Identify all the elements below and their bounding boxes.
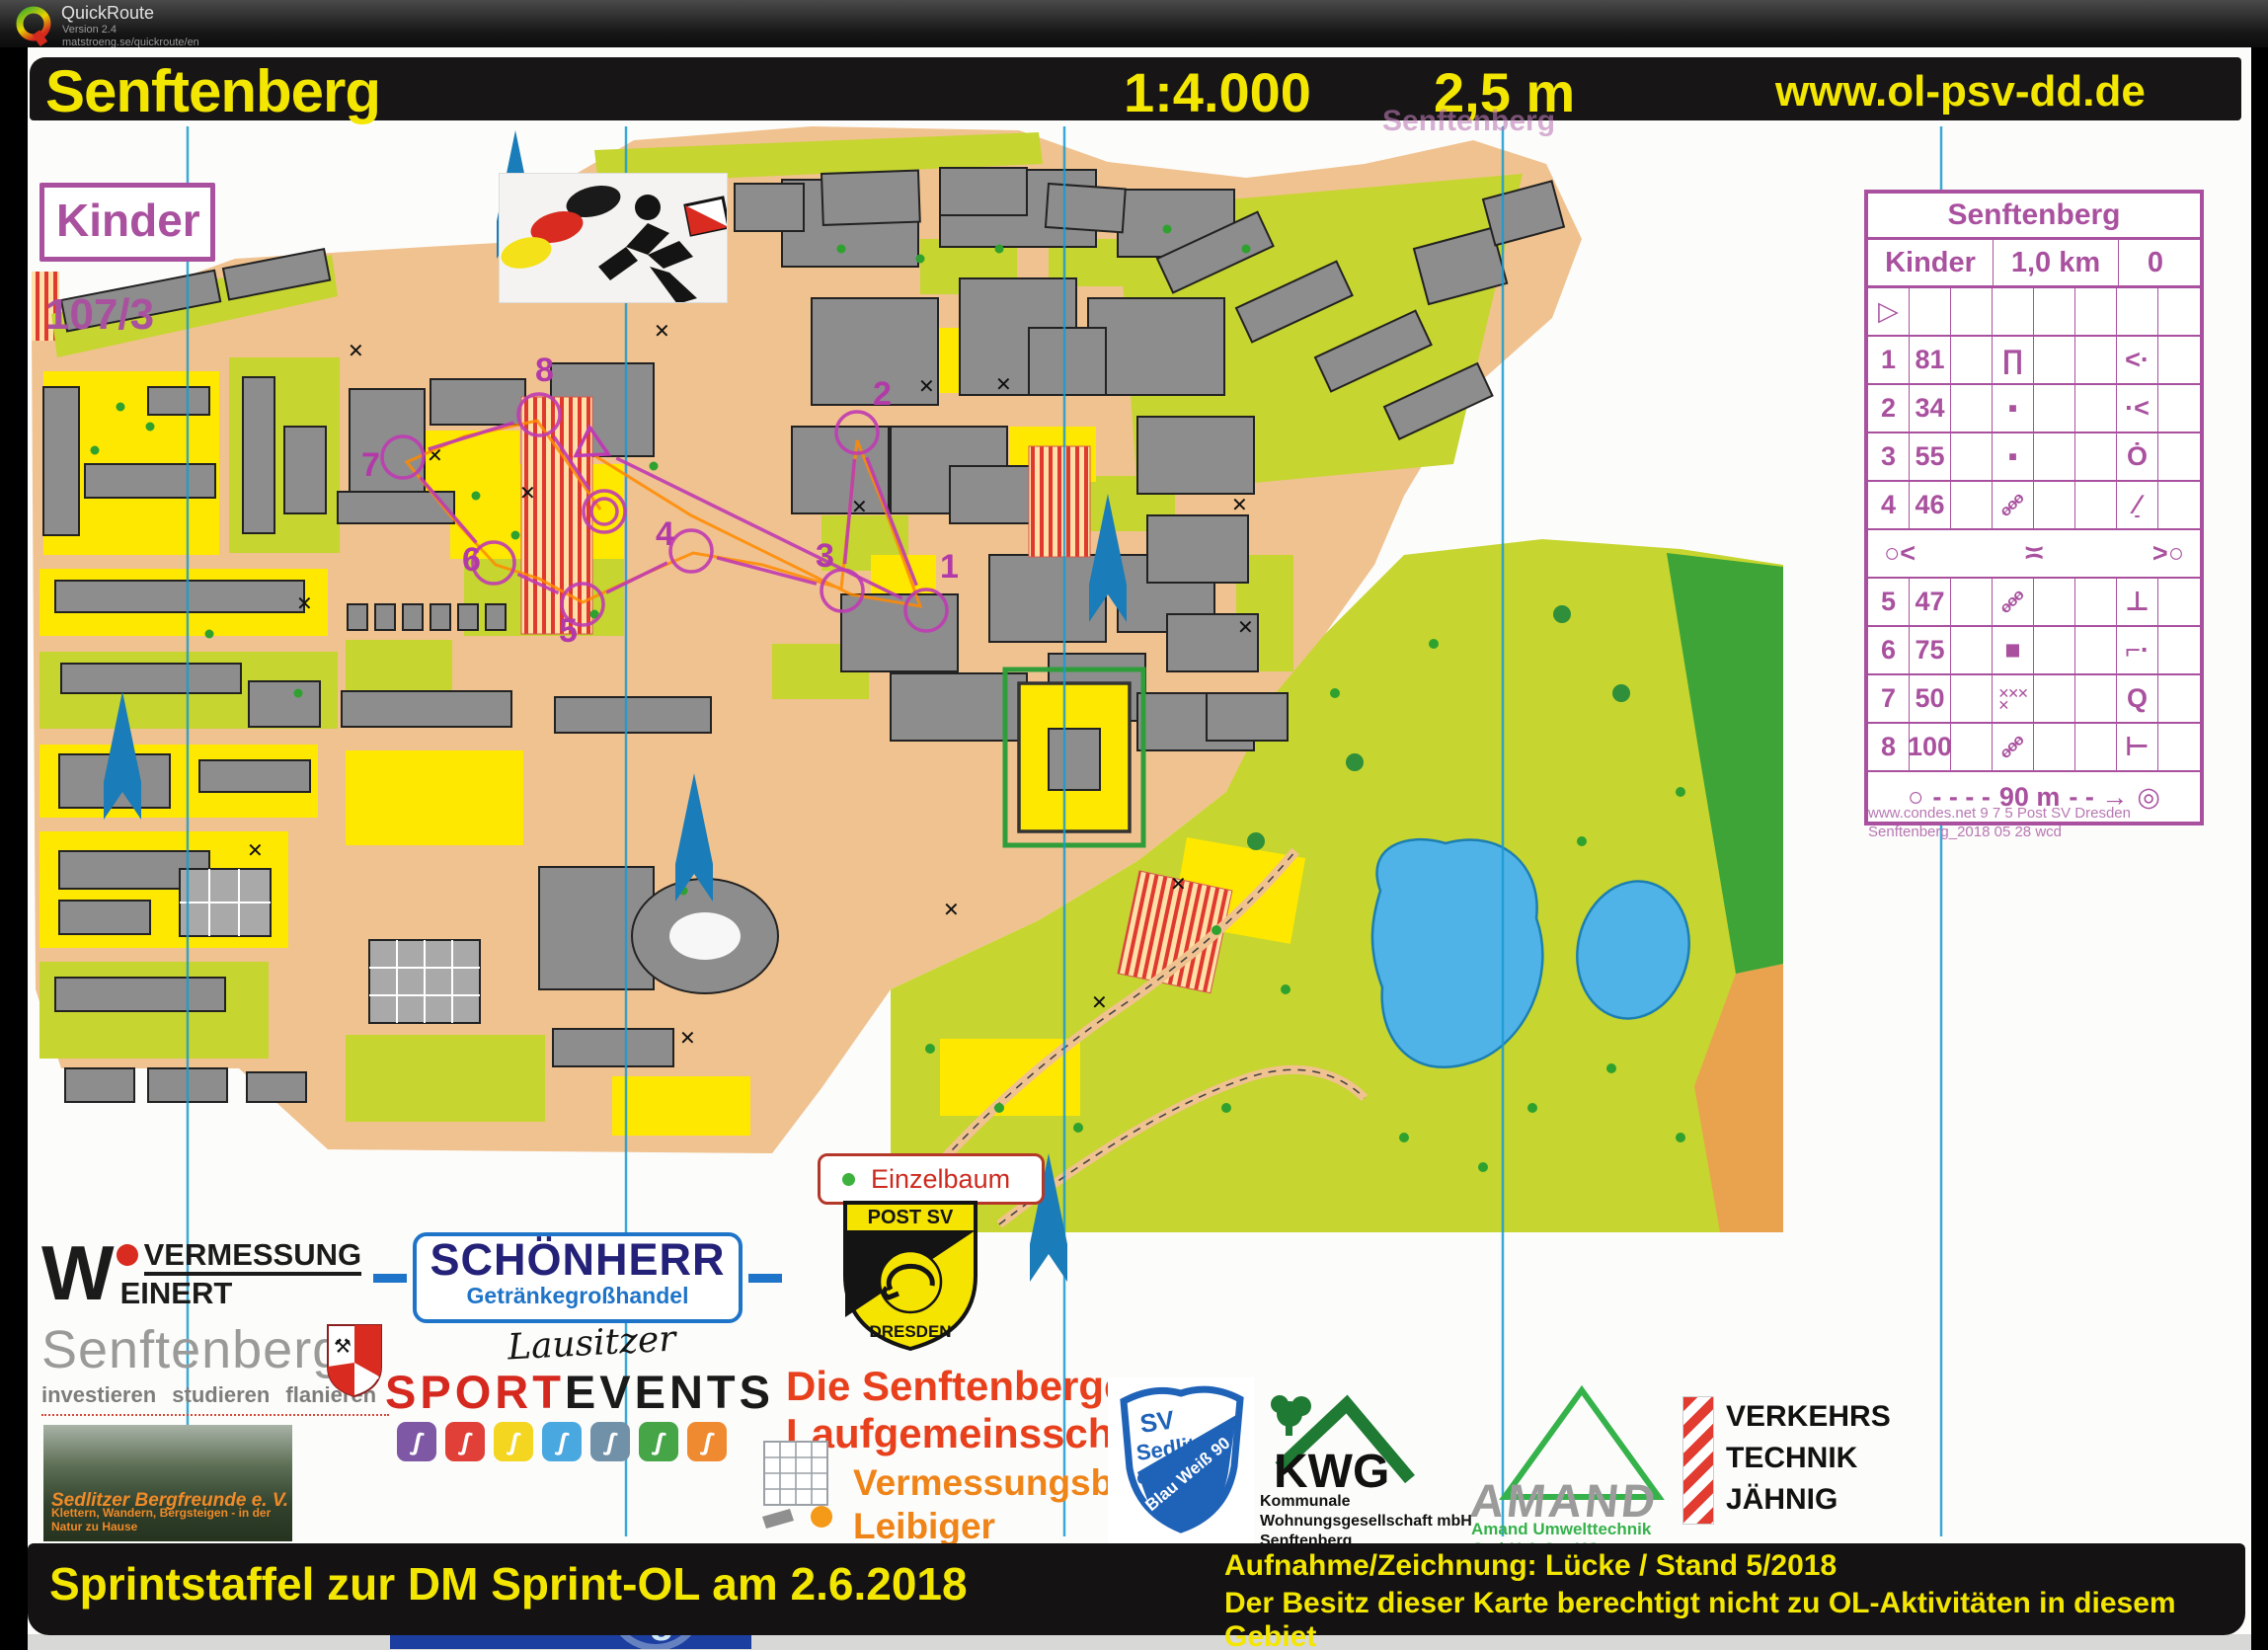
svg-text:✕: ✕ (348, 339, 364, 362)
control-number: 4 (656, 515, 674, 553)
quickroute-window: QuickRoute Version 2.4 matstroeng.se/qui… (0, 0, 2268, 1650)
sheet-cell: 5 (1868, 579, 1910, 625)
condes-credit: www.condes.net 9 7 5 Post SV Dresden (1868, 804, 2131, 823)
control-description-sheet: Senftenberg Kinder 1,0 km 0 ▷181∏<·234▪·… (1864, 190, 2204, 825)
sheet-cell: ⌐· (2117, 627, 2158, 673)
sponsor-sportevents: SPORTEVENTS (385, 1365, 774, 1419)
svg-text:✕: ✕ (1237, 615, 1254, 639)
map-credit: Aufnahme/Zeichnung: Lücke / Stand 5/2018 (1224, 1549, 1837, 1583)
sport-pictogram-icon: ʃ (494, 1422, 533, 1461)
sheet-cell: ooo (1993, 482, 2034, 528)
control-number: 6 (462, 541, 481, 579)
sheet-cell (2034, 482, 2075, 528)
sheet-cell: ■ (1993, 627, 2034, 673)
sportevents-red: SPORT (385, 1366, 565, 1418)
svg-text:✕: ✕ (918, 374, 935, 398)
sheet-cell (2034, 579, 2075, 625)
sheet-cell (1951, 385, 1993, 432)
sheet-control-row: 446ooo∕ (1868, 482, 2200, 530)
control-number: 5 (559, 612, 578, 650)
sheet-cell: 1 (1868, 337, 1910, 383)
sheet-course-info: Kinder 1,0 km 0 (1868, 240, 2200, 288)
ghost-print-title: Senftenberg (1382, 105, 1555, 138)
sheet-cell: 34 (1910, 385, 1951, 432)
sheet-cell: ooo (1993, 579, 2034, 625)
sheet-cell (2075, 433, 2117, 480)
kwg-roof-tree-icon: KWG (1260, 1388, 1428, 1491)
svg-text:✕: ✕ (1231, 493, 1248, 516)
sheet-cell (2158, 433, 2200, 480)
kwg-line2: Wohnungsgesellschaft mbH (1260, 1512, 1472, 1532)
file-credit: Senftenberg_2018 05 28 wcd (1868, 823, 2131, 841)
svg-text:✕: ✕ (851, 495, 868, 518)
sheet-cell: 7 (1868, 675, 1910, 722)
sheet-cell: 2 (1868, 385, 1910, 432)
svg-text:✕: ✕ (1091, 990, 1108, 1014)
city-crest-icon: ⚒ (326, 1323, 383, 1398)
svg-text:✕: ✕ (296, 591, 313, 615)
map-title: Senftenberg (45, 57, 380, 125)
app-title-bar: QuickRoute Version 2.4 matstroeng.se/qui… (0, 0, 2268, 47)
map-scale: 1:4.000 (1124, 60, 1311, 124)
sheet-control-row: 675■⌐· (1868, 627, 2200, 675)
control-number: 1 (940, 548, 959, 586)
relay-leg-number: 107/3 (45, 290, 154, 340)
sheet-cell (2075, 579, 2117, 625)
sheet-cell (2075, 627, 2117, 673)
sheet-cell: 100 (1910, 724, 1951, 770)
sheet-length: 1,0 km (1994, 240, 2119, 285)
map-page: ✕✕✕ ✕✕✕ ✕✕✕ ✕✕✕ ✕✕✕ (28, 47, 2251, 1639)
sheet-cell: ▷ (1868, 288, 1910, 335)
svg-text:✕: ✕ (943, 898, 960, 921)
sheet-cell (1910, 288, 1951, 335)
control-number: 7 (361, 446, 380, 484)
sheet-cell: 55 (1910, 433, 1951, 480)
sheet-climb: 0 (2119, 240, 2192, 285)
green-tree-dot-icon (842, 1173, 855, 1186)
schoenherr-name: SCHÖNHERR (417, 1236, 739, 1284)
red-dot-icon (117, 1244, 138, 1266)
sponsor-bergfreunde-photo: Sedlitzer Bergfreunde e. V. Klettern, Wa… (43, 1425, 292, 1541)
sheet-cell: ·< (2117, 385, 2158, 432)
quickroute-logo-icon (14, 4, 53, 47)
sheet-cell (2158, 288, 2200, 335)
sheet-cell: 46 (1910, 482, 1951, 528)
sheet-cell (1951, 724, 1993, 770)
blue-dash-icon (748, 1274, 782, 1283)
weinert-initial: W (41, 1238, 115, 1311)
svg-text:✕: ✕ (1170, 872, 1187, 896)
sport-icon-row: ʃʃʃʃʃʃʃ (397, 1422, 727, 1461)
sport-pictogram-icon: ʃ (542, 1422, 582, 1461)
sheet-cell (2034, 288, 2075, 335)
sheet-control-row: 181∏<· (1868, 337, 2200, 385)
sheet-cell: 6 (1868, 627, 1910, 673)
sheet-cell (1951, 627, 1993, 673)
jaehnig-line1: VERKEHRS (1726, 1396, 1891, 1438)
sheet-cell: 4 (1868, 482, 1910, 528)
sheet-cell (1951, 482, 1993, 528)
finish-double-circle-icon: ◎ (2137, 782, 2160, 813)
svg-text:✕: ✕ (995, 372, 1012, 396)
postsv-top: POST SV (868, 1207, 954, 1228)
kwg-name: KWG (1274, 1446, 1389, 1491)
runner-logo-icon (500, 174, 727, 302)
sheet-cell: 8 (1868, 724, 1910, 770)
sheet-cell (2075, 724, 2117, 770)
sheet-cell: Q (2117, 675, 2158, 722)
sport-pictogram-icon: ʃ (397, 1422, 436, 1461)
sheet-cell (1951, 288, 1993, 335)
sheet-cell: 75 (1910, 627, 1951, 673)
sheet-cell (2158, 579, 2200, 625)
sponsor-kwg: KWG Kommunale Wohnungsgesellschaft mbH S… (1260, 1388, 1472, 1551)
sheet-cell (1951, 579, 1993, 625)
sheet-start-row: ▷ (1868, 288, 2200, 337)
divider-dotted (41, 1414, 389, 1416)
jaehnig-line3: JÄHNIG (1726, 1479, 1891, 1521)
sheet-cell (2034, 385, 2075, 432)
sponsor-schoenherr: SCHÖNHERR Getränkegroßhandel (413, 1232, 743, 1323)
sheet-cell (2158, 675, 2200, 722)
sheet-cell (2158, 627, 2200, 673)
svg-text:✕: ✕ (679, 1026, 696, 1050)
svg-text:✕: ✕ (654, 319, 670, 343)
sheet-spectator-row: ○<≍>○ (1868, 530, 2200, 579)
sheet-cell: ▪ (1993, 385, 2034, 432)
footer-band: Sprintstaffel zur DM Sprint-OL am 2.6.20… (28, 1543, 2245, 1635)
bergfreunde-slogan: Klettern, Wandern, Bergsteigen - in der … (51, 1506, 292, 1533)
sheet-control-row: 750✕✕✕✕Q (1868, 675, 2200, 724)
app-name: QuickRoute (61, 3, 154, 24)
sheet-event-title: Senftenberg (1868, 194, 2200, 240)
sedlitz-sv: SV (1138, 1404, 1177, 1439)
single-tree-label: Einzelbaum (871, 1164, 1010, 1195)
sheet-cell (2158, 385, 2200, 432)
sheet-control-row: 355▪Ȯ (1868, 433, 2200, 482)
svg-text:✕: ✕ (519, 481, 536, 505)
sheet-cell (2075, 675, 2117, 722)
sponsor-weinert: W VERMESSUNG EINERT (41, 1238, 361, 1311)
blue-dash-icon (373, 1274, 407, 1283)
sheet-cell (2075, 482, 2117, 528)
usage-notice: Der Besitz dieser Karte berechtigt nicht… (1224, 1587, 2245, 1650)
hazard-stripe-icon (1682, 1396, 1714, 1525)
svg-text:⚒: ⚒ (334, 1336, 352, 1358)
jaehnig-line2: TECHNIK (1726, 1438, 1891, 1479)
sheet-cell (1951, 675, 1993, 722)
sheet-cell (1951, 337, 1993, 383)
leibiger-grid-icon (760, 1438, 839, 1529)
sheet-cell (2158, 337, 2200, 383)
event-title: Sprintstaffel zur DM Sprint-OL am 2.6.20… (49, 1557, 968, 1611)
sheet-cell (2034, 724, 2075, 770)
sheet-cell: 3 (1868, 433, 1910, 480)
sheet-cell (1993, 288, 2034, 335)
sheet-cell: 81 (1910, 337, 1951, 383)
sheet-cell: ∕ (2117, 482, 2158, 528)
schoenherr-sub: Getränkegroßhandel (417, 1284, 739, 1307)
sheet-cell (2158, 724, 2200, 770)
map-title-band: Senftenberg 1:4.000 2,5 m www.ol-psv-dd.… (30, 57, 2241, 120)
sheet-cell: ooo (1993, 724, 2034, 770)
sheet-cell: ⊥ (2117, 579, 2158, 625)
sheet-cell (2075, 337, 2117, 383)
sheet-cell: 50 (1910, 675, 1951, 722)
sheet-cell: Ȯ (2117, 433, 2158, 480)
course-class-box: Kinder (39, 183, 215, 262)
sheet-cell: ⊢ (2117, 724, 2158, 770)
sheet-credits: www.condes.net 9 7 5 Post SV Dresden Sen… (1868, 804, 2131, 841)
sheet-cell (2075, 288, 2117, 335)
sheet-cell (2075, 385, 2117, 432)
sheet-cell: 47 (1910, 579, 1951, 625)
kwg-line1: Kommunale (1260, 1492, 1472, 1512)
postsv-bottom: DRESDEN (869, 1322, 951, 1341)
control-number: 3 (816, 537, 834, 575)
sheet-cell (1951, 433, 1993, 480)
sheet-cell: <· (2117, 337, 2158, 383)
control-number: 8 (535, 352, 554, 389)
sport-pictogram-icon: ʃ (687, 1422, 727, 1461)
sport-pictogram-icon: ʃ (590, 1422, 630, 1461)
sheet-rows: ▷181∏<·234▪·<355▪Ȯ446ooo∕○<≍>○547ooo⊥675… (1868, 288, 2200, 772)
sheet-cell: ∏ (1993, 337, 2034, 383)
sportevents-black: EVENTS (565, 1366, 774, 1418)
sheet-cell (2117, 288, 2158, 335)
orienteering-runner-logo (500, 174, 727, 302)
sheet-cell (2034, 675, 2075, 722)
amand-name: AMAND (1471, 1474, 1661, 1521)
sheet-control-row: 234▪·< (1868, 385, 2200, 433)
sheet-control-row: 8100ooo⊢ (1868, 724, 2200, 772)
sport-pictogram-icon: ʃ (445, 1422, 485, 1461)
club-website: www.ol-psv-dd.de (1775, 67, 2146, 117)
weinert-line2: EINERT (120, 1276, 361, 1311)
sheet-cell (2034, 337, 2075, 383)
sponsor-postsv-badge: POST SV DRESDEN (837, 1197, 983, 1355)
sponsor-sedlitz-shield: SV Sedlitz e.V. Blau Weiß 90 (1108, 1377, 1254, 1543)
sport-pictogram-icon: ʃ (639, 1422, 678, 1461)
weinert-line1: VERMESSUNG (144, 1238, 361, 1276)
sheet-cell: ▪ (1993, 433, 2034, 480)
amand-triangle-icon: AMAND (1471, 1382, 1698, 1521)
control-number: 2 (873, 375, 892, 413)
sheet-cell (2034, 433, 2075, 480)
sponsor-jaehnig: VERKEHRS TECHNIK JÄHNIG (1682, 1396, 1891, 1525)
app-version: Version 2.4 (62, 24, 117, 36)
sheet-class: Kinder (1868, 240, 1994, 285)
svg-text:✕: ✕ (247, 838, 264, 862)
sheet-cell (2158, 482, 2200, 528)
sheet-cell (2034, 627, 2075, 673)
sheet-control-row: 547ooo⊥ (1868, 579, 2200, 627)
sheet-cell: ✕✕✕✕ (1993, 675, 2034, 722)
